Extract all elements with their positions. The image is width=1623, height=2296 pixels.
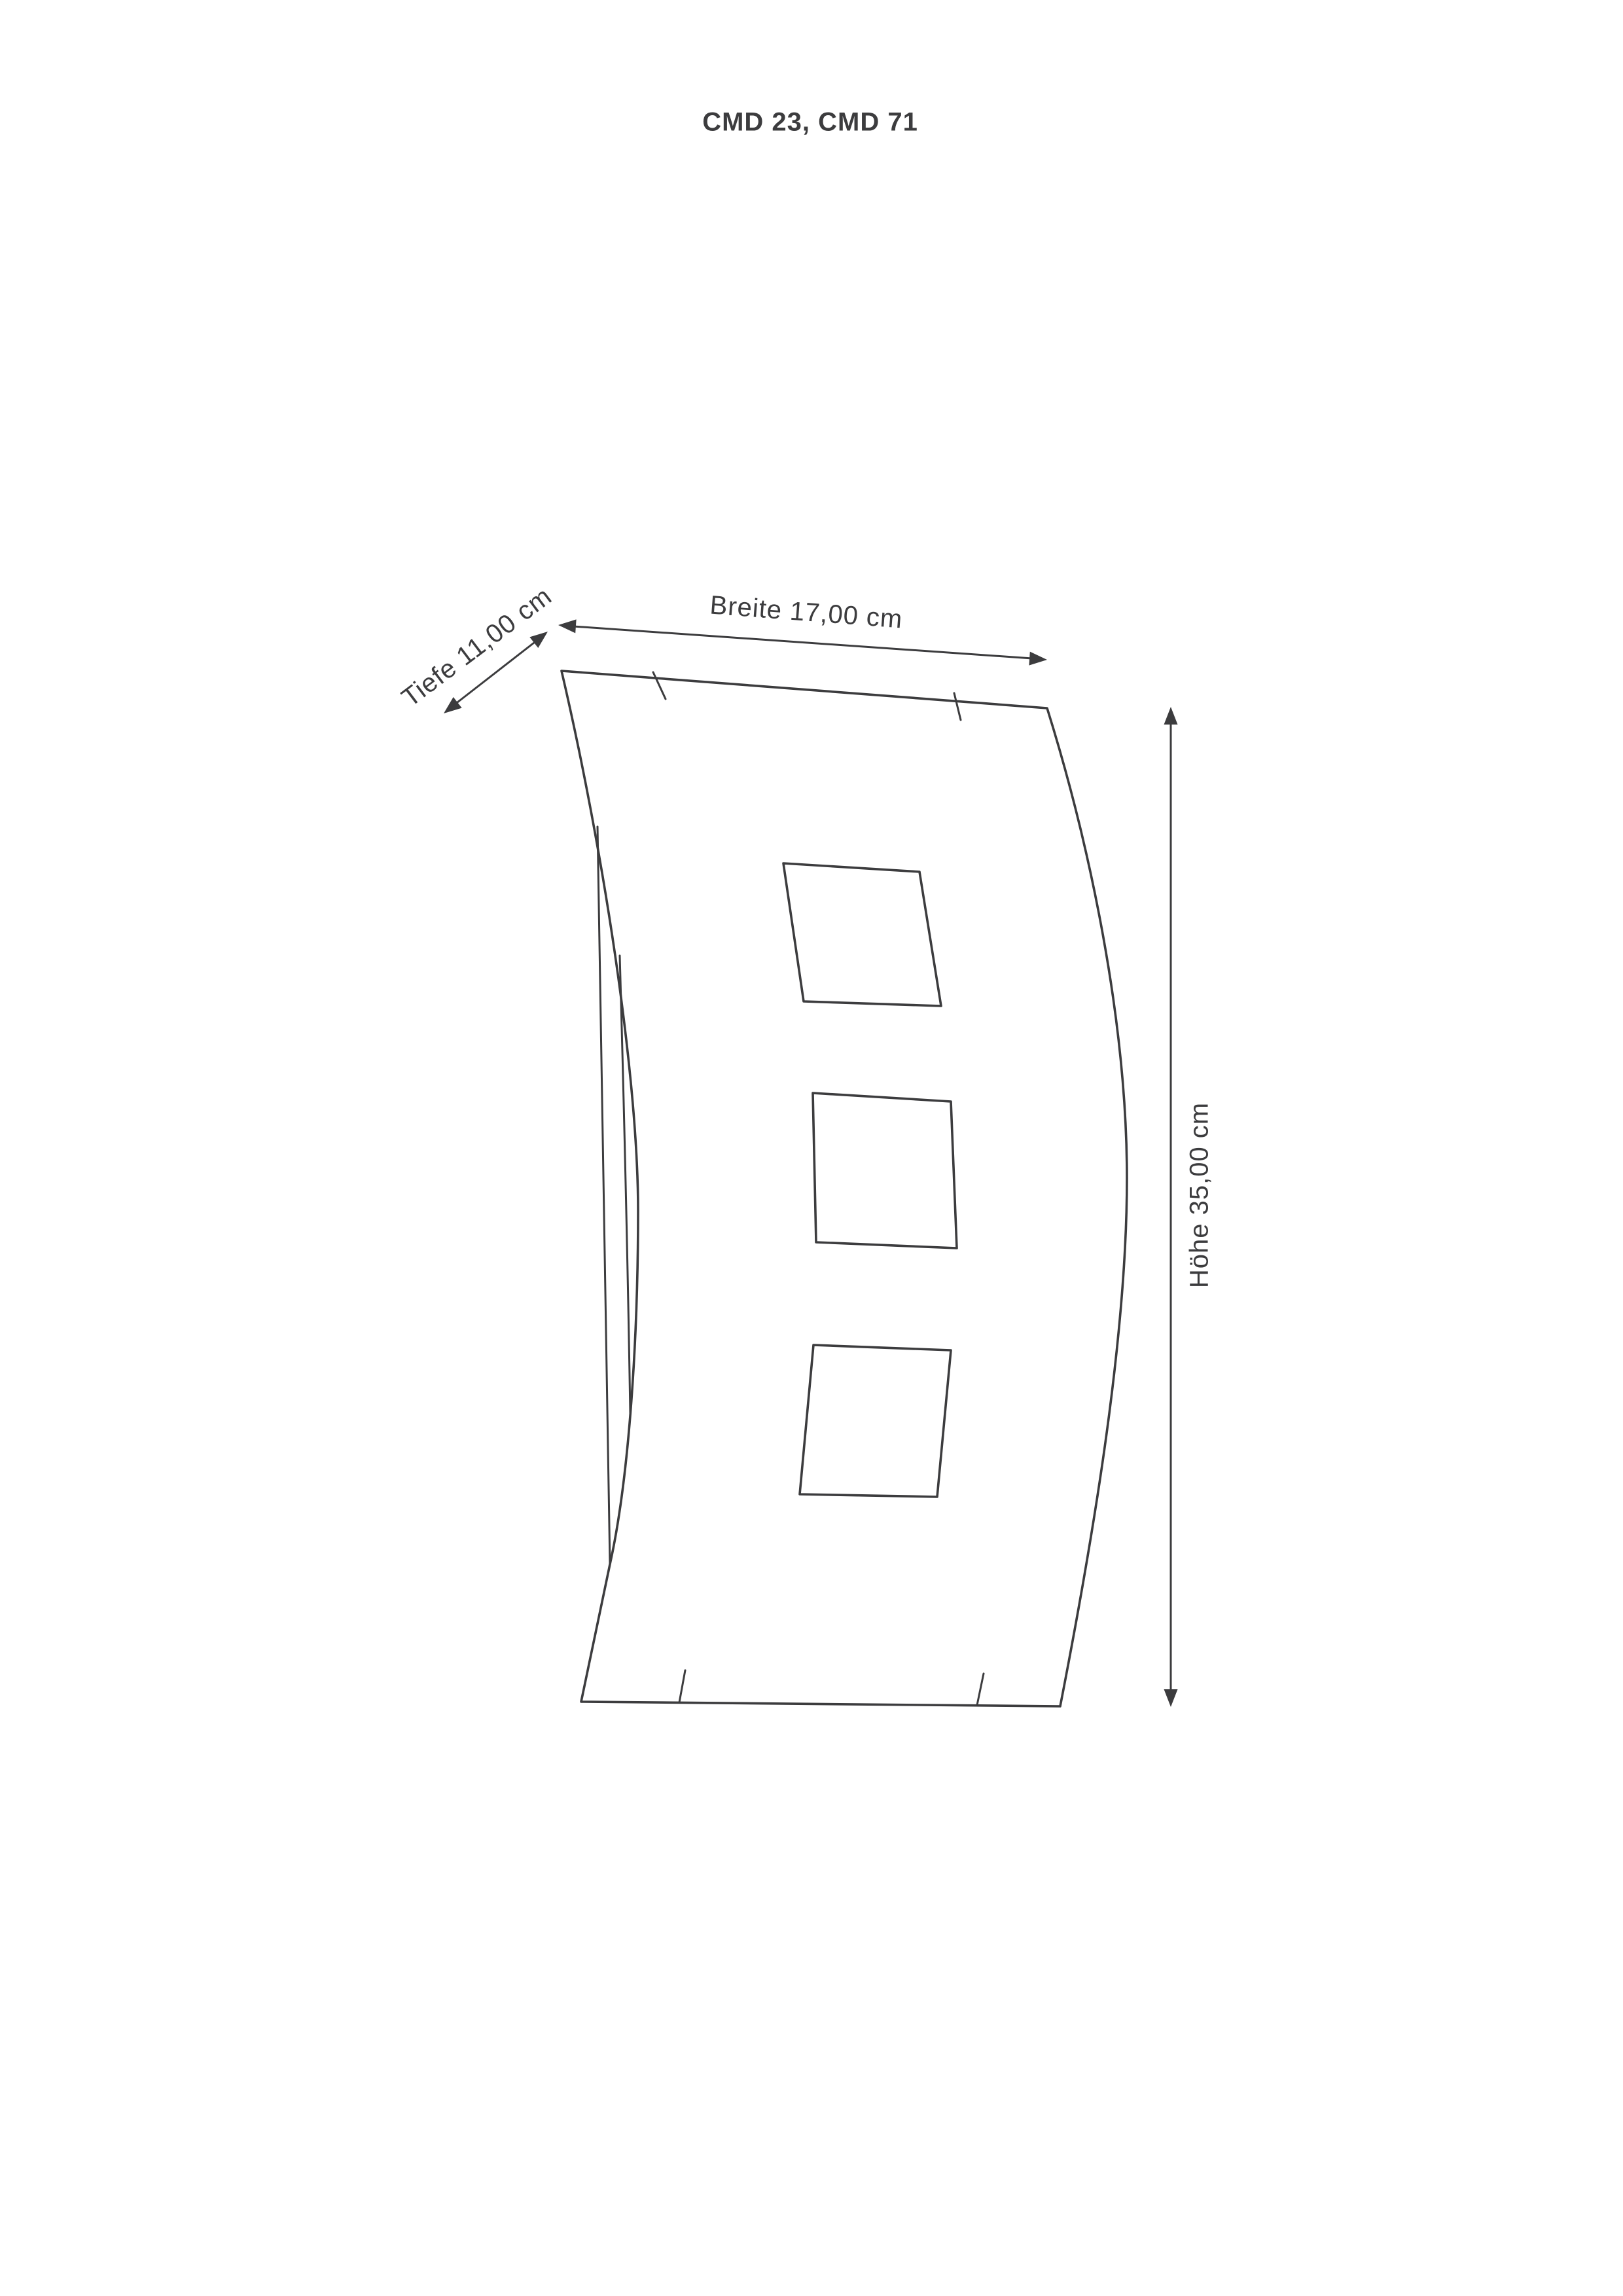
lamp-side-back-edge	[597, 827, 610, 1564]
width-arrowhead-right-icon	[1029, 652, 1047, 666]
cutout-squares-group	[783, 863, 957, 1497]
height-arrowhead-bottom-icon	[1164, 1689, 1178, 1707]
width-arrowhead-left-icon	[558, 619, 577, 633]
depth-arrowhead-lower-icon	[444, 697, 462, 713]
cutout-square-bottom	[800, 1345, 951, 1497]
height-dimension-label: Höhe 35,00 cm	[1185, 1102, 1215, 1288]
depth-arrowhead-upper-icon	[529, 632, 548, 648]
bottom-edge-notch-left	[679, 1670, 685, 1702]
height-dimension-arrow	[1164, 707, 1178, 1707]
top-edge-notch-right	[954, 693, 961, 720]
width-dimension-line	[573, 626, 1032, 658]
bottom-edge-notch-right	[977, 1674, 984, 1705]
top-edge-notch-left	[653, 672, 666, 699]
lamp-shade-outline	[562, 671, 1127, 1706]
height-arrowhead-top-icon	[1164, 707, 1178, 725]
lamp-shade-outline-group	[562, 671, 1127, 1706]
datasheet-page: CMD 23, CMD 71	[0, 0, 1623, 2296]
cutout-square-top	[783, 863, 941, 1006]
edge-notches-group	[653, 672, 984, 1705]
technical-drawing-svg	[0, 0, 1623, 2296]
cutout-square-middle	[813, 1093, 957, 1248]
